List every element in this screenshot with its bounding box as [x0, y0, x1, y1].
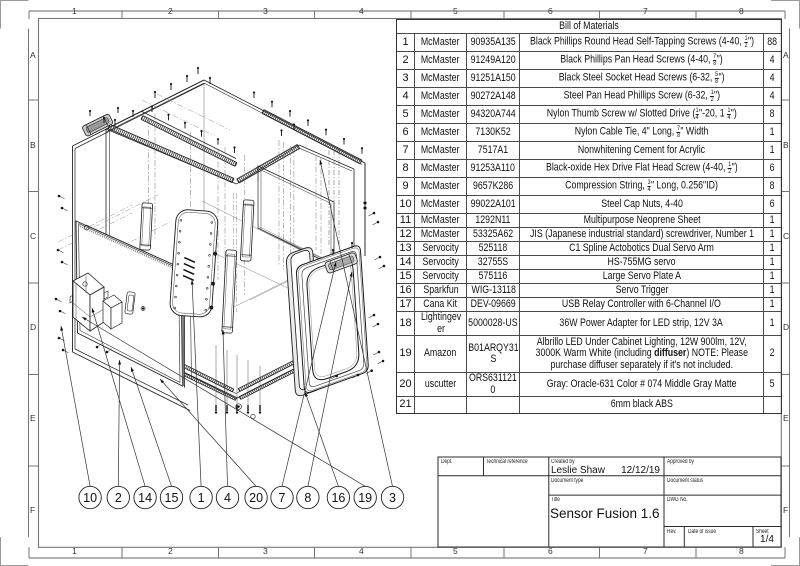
svg-text:3: 3 [389, 491, 396, 505]
svg-text:7: 7 [279, 491, 286, 505]
svg-text:8: 8 [304, 491, 311, 505]
svg-text:10: 10 [83, 491, 97, 505]
svg-text:20: 20 [249, 491, 263, 505]
svg-text:4: 4 [224, 491, 231, 505]
svg-text:15: 15 [165, 491, 179, 505]
svg-text:14: 14 [138, 491, 152, 505]
svg-text:2: 2 [115, 491, 122, 505]
svg-text:16: 16 [331, 491, 345, 505]
svg-text:1: 1 [198, 491, 205, 505]
svg-text:19: 19 [358, 491, 372, 505]
